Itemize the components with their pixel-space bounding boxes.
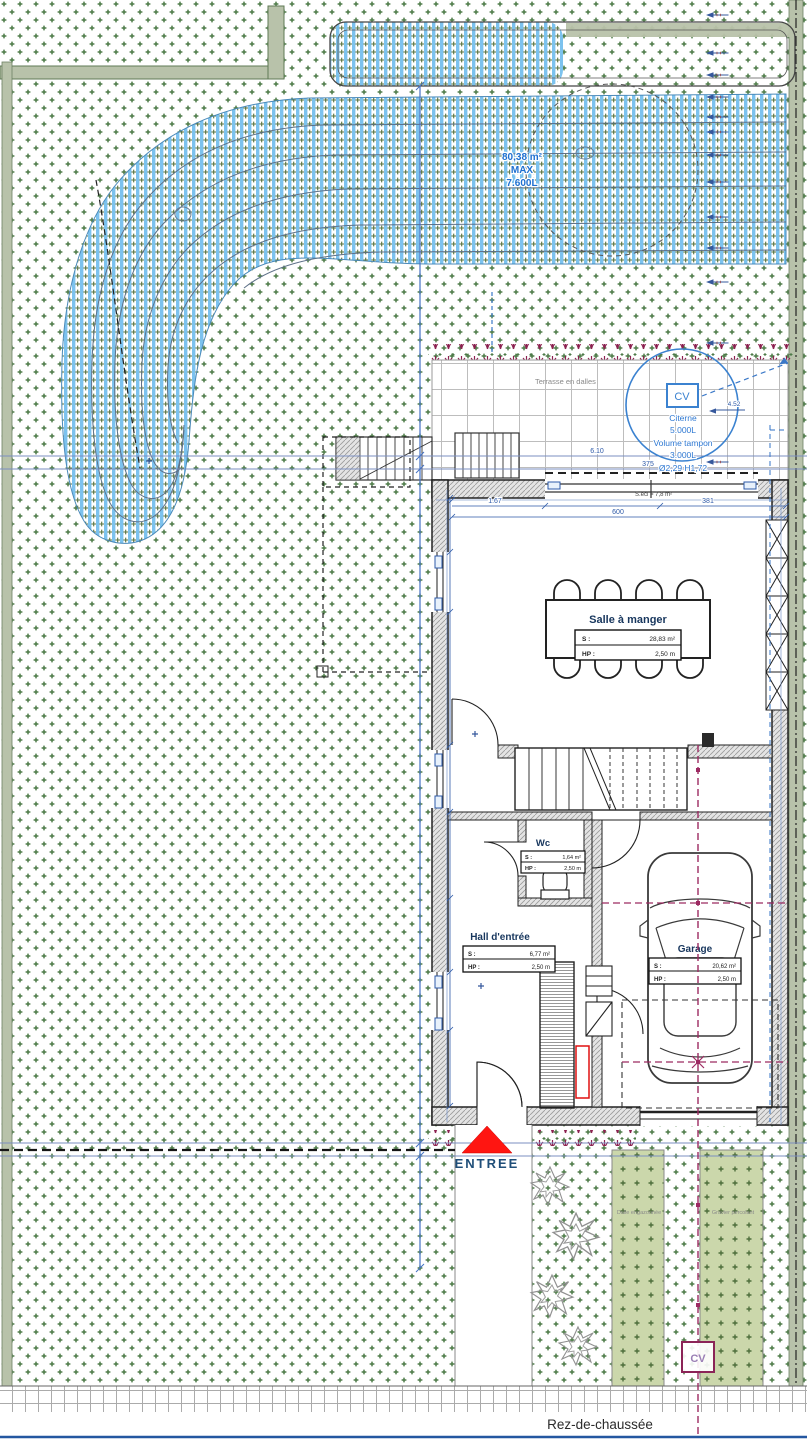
stat-value: 28,83 m² (649, 636, 675, 643)
dim-text: 1.67 (488, 498, 502, 505)
hall-cupboard (540, 962, 574, 1108)
strip-label-left: Dalle engazonnée (617, 1210, 661, 1216)
sidewalk (0, 1386, 807, 1412)
basin-max-text: MAX (511, 165, 534, 176)
column (702, 733, 714, 747)
room-stats: S : 1,64 m² HP : 2,50 m (521, 851, 585, 873)
room-name: Wc (536, 838, 550, 849)
window-light-note: S.écl = 7,8 m² (635, 492, 672, 498)
chair-icon (554, 580, 580, 600)
hedge-top-left-return (268, 6, 284, 79)
spot-level-value: 4.52 (728, 401, 741, 408)
floorplan-sheet: 80,38 m² MAX 7.600L Terrasse en dalles (0, 0, 807, 1440)
room-name: Hall d'entrée (470, 932, 530, 943)
stat-label: S : (525, 855, 532, 861)
cistern-line: Ø2,29 H1,72 (659, 463, 707, 473)
chair-icon (677, 580, 703, 600)
cistern-tag: CV (674, 391, 690, 403)
room-stats: S : 20,62 m² HP : 2,50 m (649, 958, 741, 984)
grass-strip (612, 1150, 664, 1386)
stat-value: 2,50 m (532, 965, 550, 971)
room-stats: S : 6,77 m² HP : 2,50 m (463, 946, 555, 972)
braced-wall-strip (766, 520, 788, 710)
terrace-label: Terrasse en dalles (535, 377, 596, 386)
chair-icon (554, 658, 580, 678)
cistern-line: 3.000L (670, 450, 696, 460)
stat-label: S : (654, 964, 662, 970)
manhole-label: CV (690, 1353, 706, 1365)
chair-icon (677, 658, 703, 678)
stat-value: 2,50 m (564, 866, 581, 872)
planted-border-top (428, 344, 796, 360)
basin-area-text: 80,38 m² (502, 152, 543, 163)
cistern-line: 5.000L (670, 425, 696, 435)
stat-label: HP : (582, 651, 595, 658)
stat-label: HP : (525, 866, 536, 872)
basin-volume-text: 7.600L (506, 178, 537, 189)
stat-value: 20,62 m² (712, 964, 736, 970)
dim-text: 6.10 (590, 448, 604, 455)
stat-label: S : (582, 636, 590, 643)
cistern-line: Citerne (669, 413, 697, 423)
stat-label: HP : (654, 977, 666, 983)
room-name: Garage (678, 944, 713, 955)
stat-value: 2,50 m (655, 651, 675, 658)
hedge-top-left (0, 66, 278, 79)
stat-value: 2,50 m (718, 977, 736, 983)
building: S.écl = 7,8 m² (428, 473, 788, 1146)
chair-icon (595, 658, 621, 678)
hedge-left (2, 62, 12, 1386)
strip-label-right: Gravier percolant (712, 1210, 755, 1216)
room-name: Salle à manger (589, 614, 667, 626)
room-stats: S : 28,83 m² HP : 2,50 m (575, 630, 681, 660)
dim-text: 375 (642, 461, 654, 468)
dim-text: 381 (702, 498, 714, 505)
chair-icon (636, 580, 662, 600)
dim-text: 600 (612, 509, 624, 516)
stat-value: 6,77 m² (530, 952, 550, 958)
chair-icon (595, 580, 621, 600)
cistern-line: Volume tampon (653, 438, 712, 448)
chair-icon (636, 658, 662, 678)
stat-label: S : (468, 952, 476, 958)
front-door-opening (477, 1106, 527, 1126)
plan-title: Rez-de-chaussée (547, 1417, 653, 1432)
stat-value: 1,64 m² (562, 855, 581, 861)
room-dining-label: Salle à manger S : 28,83 m² HP : 2,50 m (575, 614, 681, 660)
staircase (515, 748, 687, 810)
entrance-label: ENTREE (455, 1156, 520, 1171)
floorplan-canvas: 80,38 m² MAX 7.600L Terrasse en dalles (0, 0, 807, 1440)
stat-label: HP : (468, 965, 480, 971)
meter-box-red (576, 1046, 589, 1098)
